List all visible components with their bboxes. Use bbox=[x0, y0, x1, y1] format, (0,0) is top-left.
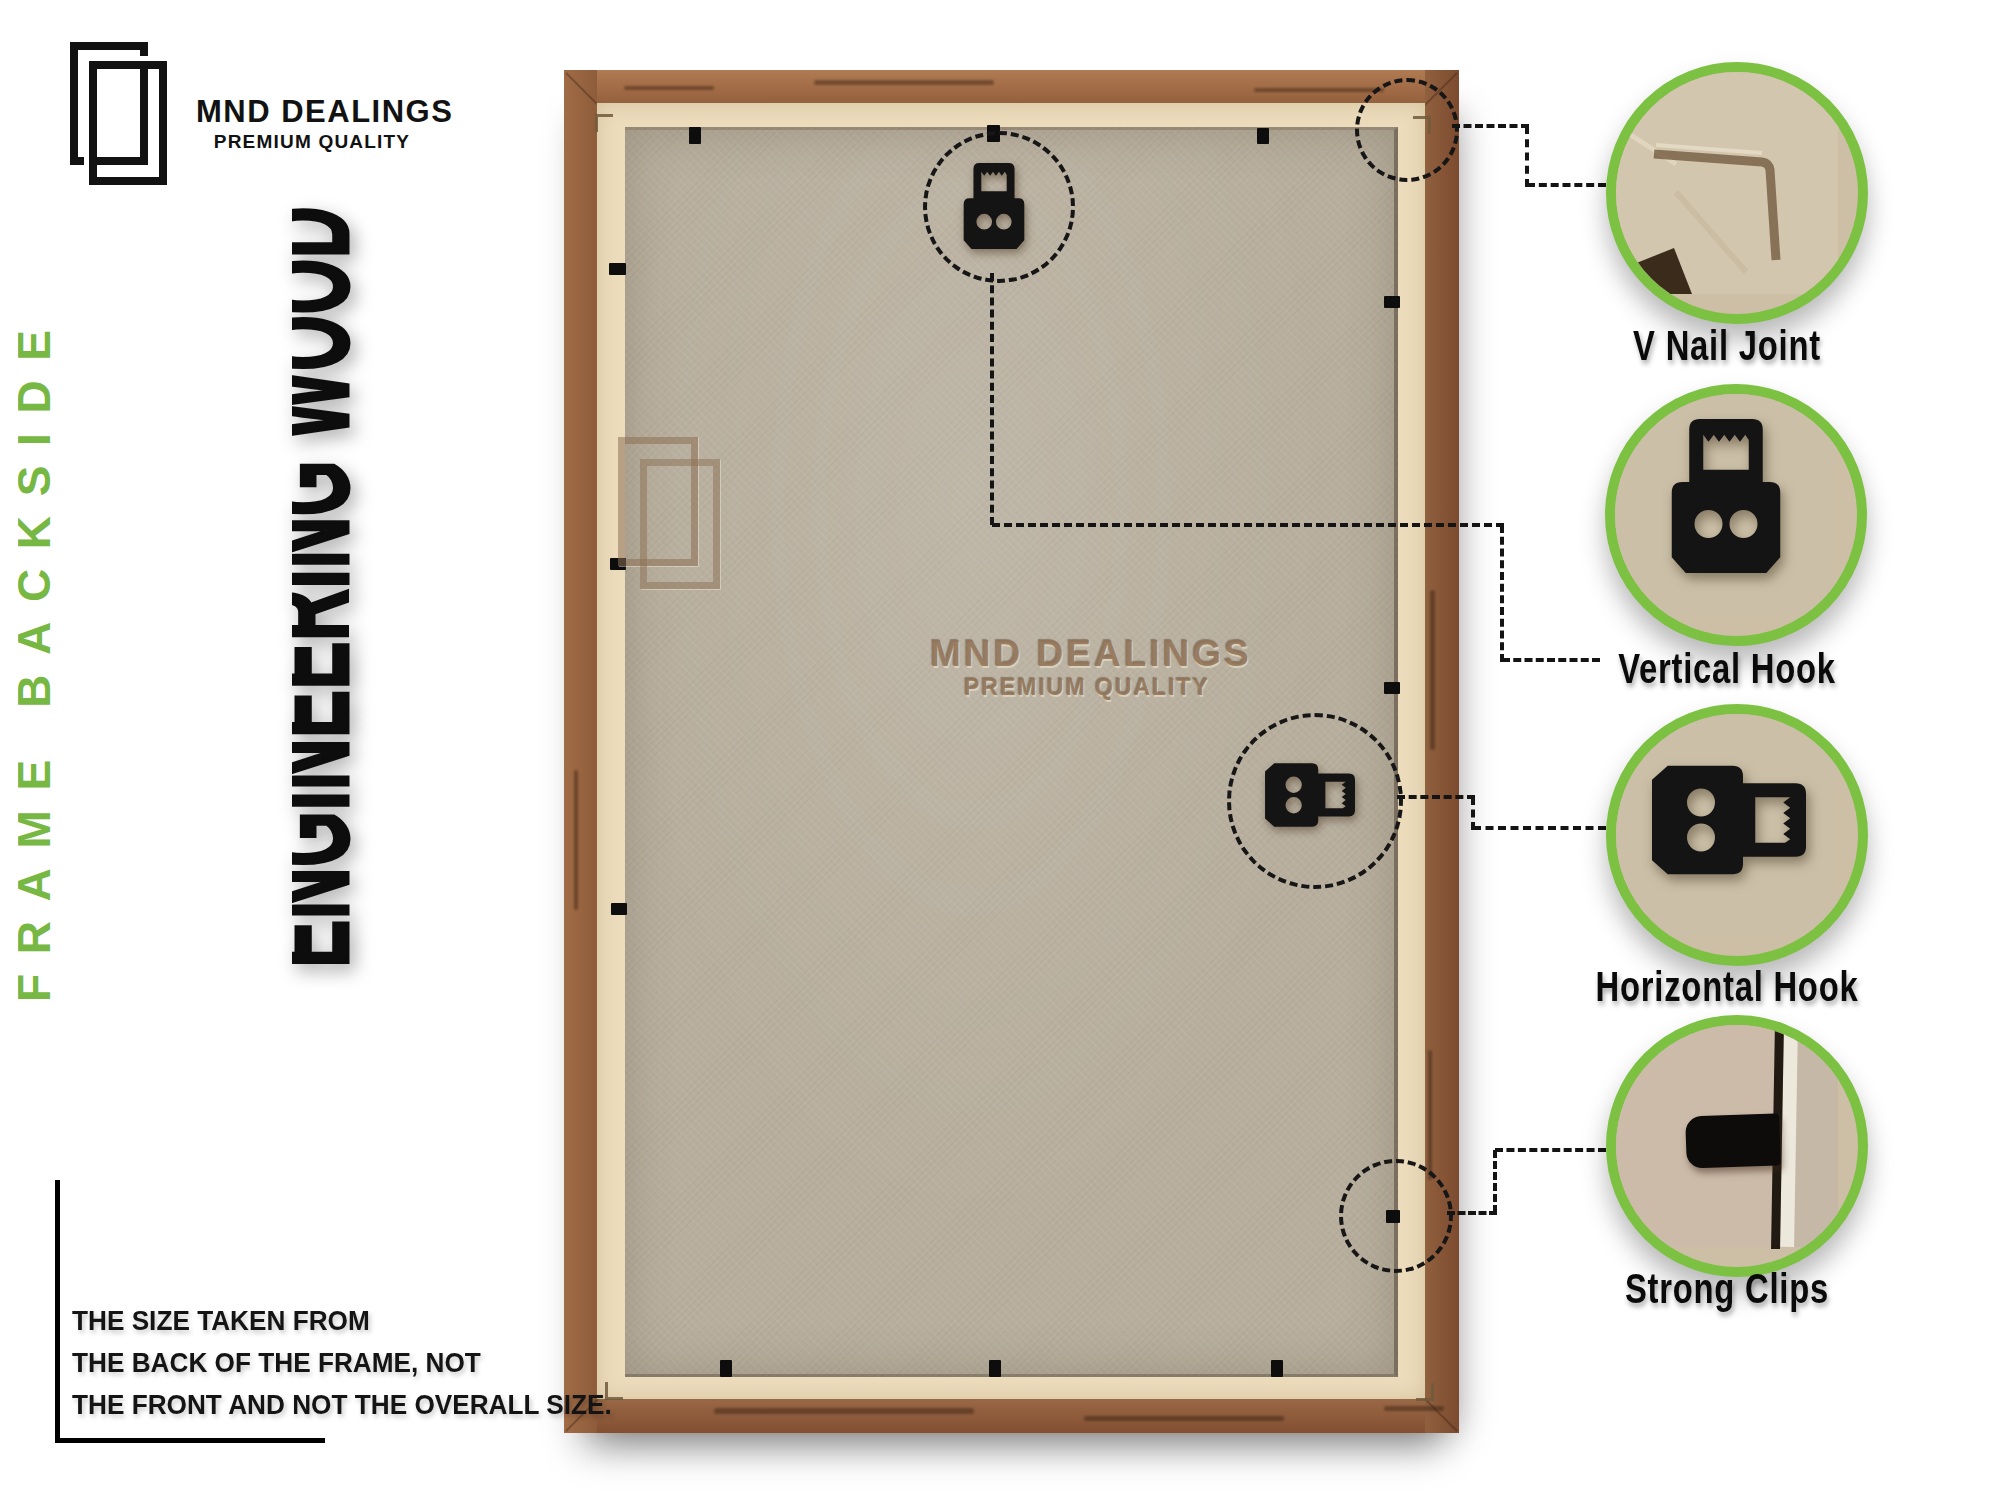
vertical-hook-highlight-circle bbox=[923, 131, 1075, 283]
back-clip bbox=[689, 127, 701, 144]
corner-mark-icon bbox=[1416, 1383, 1434, 1401]
wood-grain bbox=[1430, 590, 1435, 750]
connector-strong-clips bbox=[1495, 1148, 1606, 1152]
page: MND DEALINGS PREMIUM QUALITY FRAME BACKS… bbox=[0, 0, 2000, 1500]
size-note-line: THE SIZE TAKEN FROM bbox=[72, 1300, 612, 1342]
size-note-line: THE BACK OF THE FRAME, NOT bbox=[72, 1342, 612, 1384]
callout-circle-strong-clips bbox=[1606, 1015, 1868, 1277]
callout-label-horizontal-hook: Horizontal Hook bbox=[1548, 963, 1907, 1011]
back-clip bbox=[1271, 1360, 1283, 1377]
corner-mark-icon bbox=[595, 114, 613, 132]
material-label: ENGINEERING WOOD bbox=[292, 190, 464, 990]
frame-wood-left bbox=[564, 70, 597, 1433]
connector-vertical-hook bbox=[990, 273, 994, 525]
watermark-logo-icon-front bbox=[640, 459, 720, 589]
connector-strong-clips bbox=[1447, 1211, 1497, 1215]
connector-strong-clips bbox=[1493, 1150, 1497, 1213]
back-clip bbox=[1384, 682, 1400, 694]
connector-vertical-hook bbox=[1500, 525, 1504, 662]
wood-grain bbox=[1254, 88, 1384, 92]
connector-v-nail bbox=[1525, 126, 1529, 187]
wood-grain bbox=[574, 770, 578, 910]
back-clip bbox=[609, 263, 626, 275]
watermark-tagline: PREMIUM QUALITY bbox=[964, 674, 1176, 701]
watermark-brand: MND DEALINGS bbox=[930, 633, 1222, 675]
horizontal-hook-highlight-circle bbox=[1227, 713, 1403, 889]
side-label: FRAME BACKSIDE bbox=[18, 310, 102, 1020]
side-label-text: FRAME BACKSIDE bbox=[18, 330, 60, 1002]
callout-circle-vertical-hook bbox=[1605, 384, 1867, 646]
wood-grain bbox=[1428, 1050, 1432, 1180]
brand-name: MND DEALINGS bbox=[196, 94, 453, 130]
size-note-line: THE FRONT AND NOT THE OVERALL SIZE. bbox=[72, 1384, 612, 1426]
strong-clip-detail bbox=[1685, 1113, 1781, 1168]
connector-v-nail bbox=[1452, 124, 1529, 128]
brand-tagline: PREMIUM QUALITY bbox=[196, 131, 428, 153]
connector-vertical-hook bbox=[992, 523, 1504, 527]
back-clip bbox=[989, 1360, 1001, 1377]
callout-label-v-nail-joint: V Nail Joint bbox=[1548, 322, 1907, 370]
connector-horizontal-hook bbox=[1473, 826, 1606, 830]
wood-grain bbox=[714, 1408, 974, 1414]
v-nail-highlight-circle bbox=[1355, 78, 1459, 182]
back-clip bbox=[611, 903, 627, 915]
vertical-hook-detail bbox=[1615, 394, 1837, 616]
strong-clips-highlight-circle bbox=[1339, 1159, 1453, 1273]
size-note: THE SIZE TAKEN FROM THE BACK OF THE FRAM… bbox=[72, 1300, 612, 1426]
wood-grain bbox=[1084, 1416, 1284, 1421]
callout-label-vertical-hook: Vertical Hook bbox=[1548, 645, 1907, 693]
material-label-text: ENGINEERING WOOD bbox=[292, 206, 375, 968]
back-clip bbox=[1384, 296, 1400, 308]
callout-circle-v-nail-joint bbox=[1606, 62, 1868, 324]
frame-wood-bottom bbox=[564, 1399, 1459, 1433]
horizontal-hook-detail bbox=[1616, 714, 1838, 936]
frame-logo-icon-front bbox=[89, 61, 167, 185]
wood-grain bbox=[814, 80, 994, 85]
callout-label-strong-clips: Strong Clips bbox=[1548, 1265, 1907, 1313]
callout-circle-horizontal-hook bbox=[1606, 704, 1868, 966]
connector-v-nail bbox=[1527, 183, 1606, 187]
wood-grain bbox=[624, 86, 714, 90]
connector-horizontal-hook bbox=[1397, 795, 1475, 799]
back-clip bbox=[720, 1360, 732, 1377]
back-clip bbox=[1257, 128, 1269, 144]
v-nail-joint-detail bbox=[1616, 72, 1838, 294]
